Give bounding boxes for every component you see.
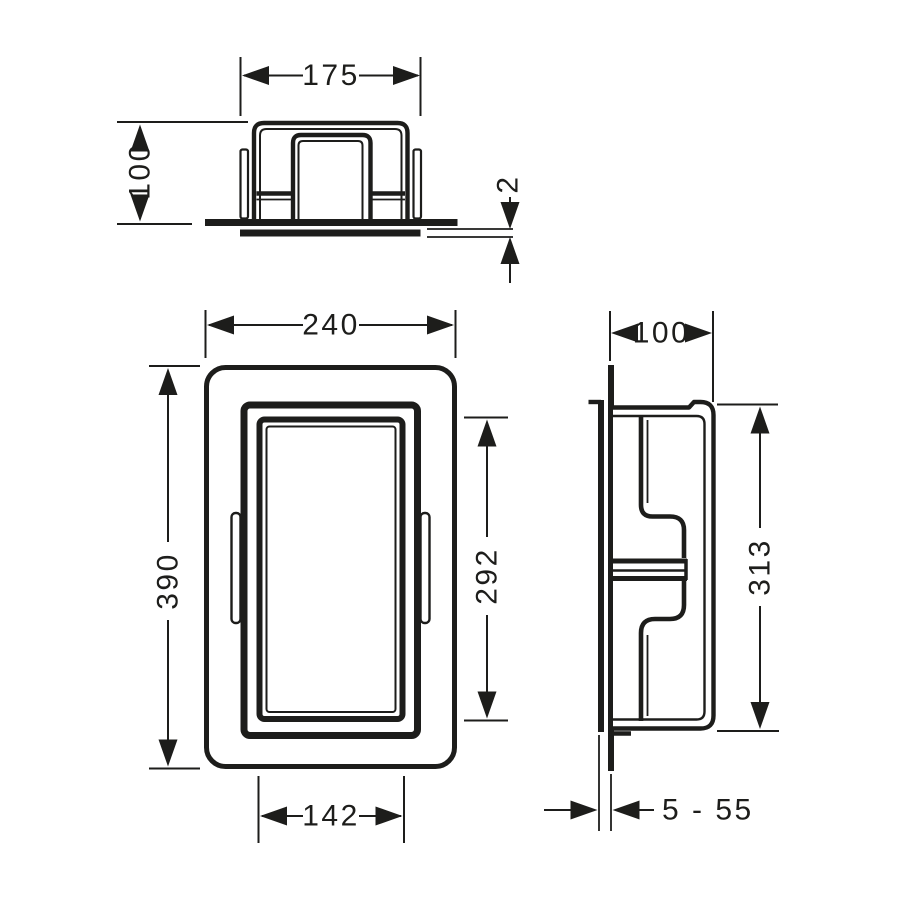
dim-label-tile-thickness: 5 - 55 bbox=[662, 794, 754, 827]
drawing-background bbox=[0, 0, 900, 900]
top-view-right-clip bbox=[414, 150, 422, 219]
dim-label-front-height: 390 bbox=[152, 552, 185, 610]
dim-label-flange-thickness: 2 bbox=[492, 174, 525, 193]
top-view-left-clip bbox=[241, 150, 249, 219]
dim-label-side-depth: 100 bbox=[633, 317, 691, 350]
dim-label-body-height: 313 bbox=[744, 538, 777, 596]
front-view-left-clip bbox=[232, 513, 241, 623]
front-view-right-clip bbox=[421, 513, 430, 623]
front-view-opening-edge bbox=[260, 420, 403, 720]
dimension-drawing: 175 100 2 bbox=[0, 0, 900, 900]
dim-label-opening-width: 142 bbox=[302, 800, 360, 833]
dim-label-front-width: 240 bbox=[302, 309, 360, 342]
dim-label-top-depth: 100 bbox=[124, 142, 157, 200]
side-view-housing-outline bbox=[613, 402, 714, 729]
drawing-svg: 175 100 2 bbox=[0, 0, 900, 900]
dim-label-opening-height: 292 bbox=[471, 547, 504, 605]
dim-label-top-width: 175 bbox=[302, 59, 360, 92]
